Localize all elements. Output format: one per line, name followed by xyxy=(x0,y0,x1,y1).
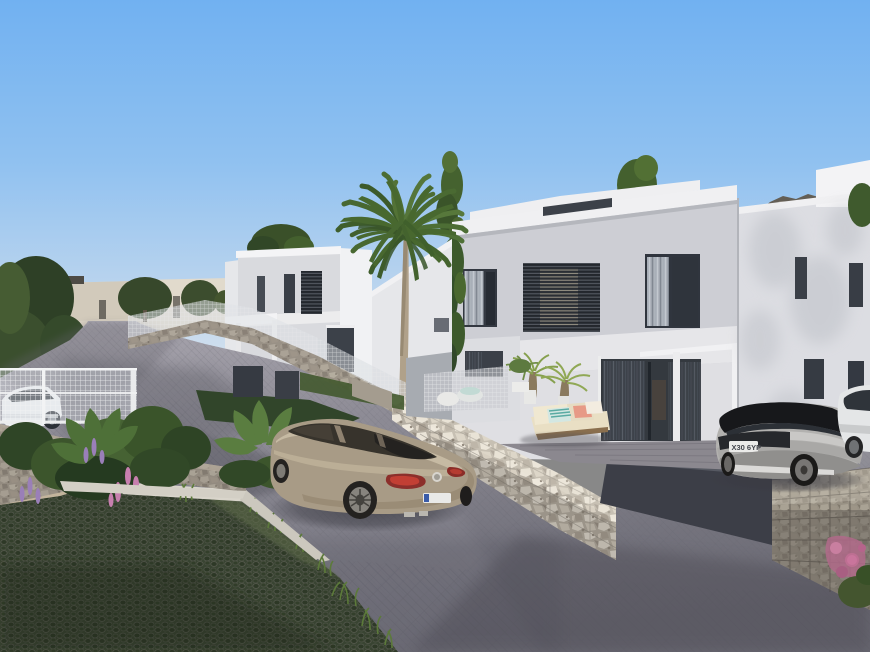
svg-text:X30 6YP: X30 6YP xyxy=(732,443,762,452)
